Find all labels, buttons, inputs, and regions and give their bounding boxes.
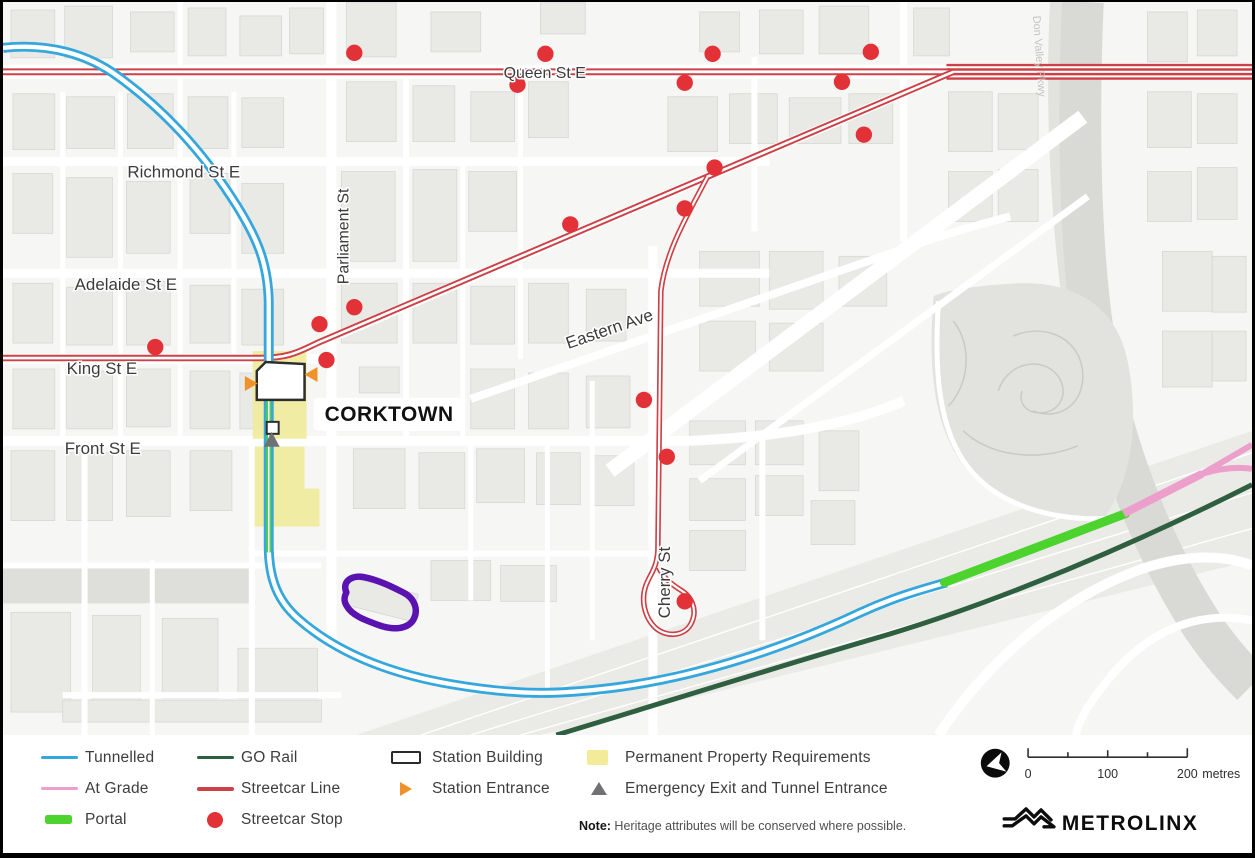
streetcar-stop — [677, 75, 693, 91]
scale-label-0: 0 — [1025, 767, 1032, 781]
streetcar-stop — [856, 126, 872, 142]
streetcar-stop — [706, 159, 722, 175]
street-label-queen: Queen St E — [504, 65, 586, 82]
note-text: Heritage attributes will be conserved wh… — [611, 819, 906, 833]
streetcar-stop — [346, 45, 362, 61]
streetcar-stop — [537, 46, 553, 62]
streetcar-stop — [147, 339, 163, 355]
legend-item-emergency-exit: Emergency Exit and Tunnel Entrance — [579, 778, 888, 799]
streetcar-stop — [562, 216, 578, 232]
go-rail-line-swatch — [195, 756, 241, 760]
station-entrance-swatch — [386, 782, 432, 796]
station-building-swatch — [386, 751, 432, 764]
screenshot-frame: CORKTOWN Queen St E Richmond St E Adelai… — [0, 0, 1255, 858]
legend-note: Note: Heritage attributes will be conser… — [579, 819, 906, 833]
scale-unit: metres — [1202, 767, 1240, 781]
legend-label: Permanent Property Requirements — [625, 749, 871, 767]
legend-label: Tunnelled — [85, 749, 154, 767]
legend-label: Streetcar Stop — [241, 811, 343, 829]
streetcar-stop — [677, 593, 693, 609]
legend-label: Station Entrance — [432, 780, 550, 798]
map-canvas: CORKTOWN Queen St E Richmond St E Adelai… — [3, 2, 1252, 735]
legend-label: At Grade — [85, 780, 149, 798]
metrolinx-logo-icon — [1004, 809, 1054, 827]
streetcar-stop — [704, 46, 720, 62]
legend-label: Streetcar Line — [241, 780, 340, 798]
legend-item-property: Permanent Property Requirements — [579, 747, 888, 768]
legend-item-streetcar-stop: Streetcar Stop — [195, 809, 343, 830]
legend-label: Emergency Exit and Tunnel Entrance — [625, 780, 888, 798]
street-label-richmond: Richmond St E — [127, 163, 240, 182]
north-arrow — [981, 749, 1010, 778]
legend-item-station-entrance: Station Entrance — [386, 778, 550, 799]
portal-swatch — [39, 815, 85, 824]
legend: Tunnelled At Grade Portal GO Rail Street… — [3, 735, 1252, 853]
legend-item-streetcar-line: Streetcar Line — [195, 778, 343, 799]
emergency-exit-group — [264, 422, 280, 447]
streetcar-stop — [311, 316, 327, 332]
streetcar-stop-swatch — [195, 812, 241, 828]
at-grade-line-swatch — [39, 787, 85, 791]
legend-column-1: Tunnelled At Grade Portal — [39, 747, 154, 830]
legend-item-go-rail: GO Rail — [195, 747, 343, 768]
scale-label-100: 100 — [1097, 767, 1118, 781]
legend-column-3: Station Building Station Entrance — [386, 747, 550, 799]
street-label-front: Front St E — [65, 439, 141, 458]
streetcar-line-swatch — [195, 787, 241, 791]
streetcar-stop — [863, 44, 879, 60]
station-building — [257, 362, 305, 400]
legend-label: GO Rail — [241, 749, 298, 767]
emergency-exit-building — [267, 422, 279, 434]
legend-column-4: Permanent Property Requirements Emergenc… — [579, 747, 888, 799]
streetcar-stop — [636, 392, 652, 408]
legend-label: Portal — [85, 811, 127, 829]
streetcar-stop — [677, 200, 693, 216]
legend-item-station-building: Station Building — [386, 747, 550, 768]
scale-label-200: 200 — [1177, 767, 1198, 781]
streetcar-stop — [834, 74, 850, 90]
metrolinx-logo-text: METROLINX — [1062, 812, 1198, 835]
station-callout: CORKTOWN — [314, 398, 465, 431]
legend-item-tunnelled: Tunnelled — [39, 747, 154, 768]
street-label-king: King St E — [67, 359, 137, 378]
rail-yard-band — [3, 565, 252, 603]
note-label: Note: — [579, 819, 611, 833]
street-label-cherry: Cherry St — [655, 546, 674, 618]
map-area: CORKTOWN Queen St E Richmond St E Adelai… — [3, 2, 1252, 735]
emergency-exit-swatch — [579, 782, 625, 795]
streetcar-stop — [346, 299, 362, 315]
streetcar-stop — [659, 449, 675, 465]
streetcar-stop — [318, 352, 334, 368]
tunnelled-line-swatch — [39, 756, 85, 760]
property-swatch — [579, 750, 625, 765]
legend-column-2: GO Rail Streetcar Line Streetcar Stop — [195, 747, 343, 830]
station-name: CORKTOWN — [325, 403, 454, 426]
street-label-parliament: Parliament St — [335, 188, 352, 284]
scale-bar — [1028, 748, 1187, 757]
map-document: CORKTOWN Queen St E Richmond St E Adelai… — [3, 2, 1252, 853]
street-label-adelaide: Adelaide St E — [75, 275, 177, 294]
legend-item-at-grade: At Grade — [39, 778, 154, 799]
legend-label: Station Building — [432, 749, 543, 767]
legend-item-portal: Portal — [39, 809, 154, 830]
